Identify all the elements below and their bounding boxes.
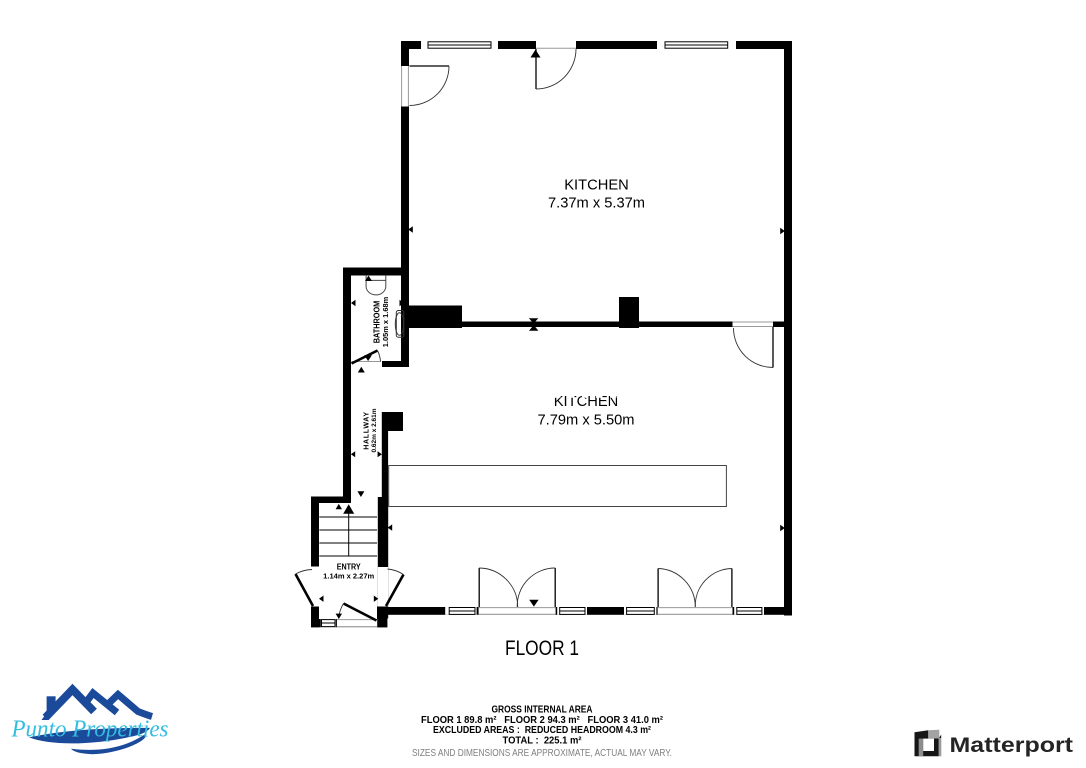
svg-text:BATHROOM: BATHROOM xyxy=(372,300,381,343)
svg-text:EXCLUDED AREAS : REDUCED HEAD: EXCLUDED AREAS : REDUCED HEADROOM 4.3 m² xyxy=(433,725,652,736)
svg-text:FLOOR 1: FLOOR 1 xyxy=(505,637,579,660)
svg-text:HALLWAY: HALLWAY xyxy=(364,411,371,449)
svg-text:1.14m x 2.27m: 1.14m x 2.27m xyxy=(323,572,374,581)
svg-text:0.62m x 2.61m: 0.62m x 2.61m xyxy=(371,408,378,452)
svg-text:ENTRY: ENTRY xyxy=(337,563,362,572)
svg-text:GROSS INTERNAL AREA: GROSS INTERNAL AREA xyxy=(492,705,593,716)
svg-text:7.37m x 5.37m: 7.37m x 5.37m xyxy=(548,195,645,212)
svg-text:Punto Properties: Punto Properties xyxy=(11,717,169,743)
svg-text:KITCHEN: KITCHEN xyxy=(564,177,629,194)
svg-text:TOTAL : 225.1 m²: TOTAL : 225.1 m² xyxy=(503,736,583,747)
svg-text:Matterport: Matterport xyxy=(950,733,1074,757)
svg-text:SIZES AND DIMENSIONS ARE APPRO: SIZES AND DIMENSIONS ARE APPROXIMATE, AC… xyxy=(412,748,672,759)
svg-text:1.05m x 1.68m: 1.05m x 1.68m xyxy=(381,296,390,347)
svg-text:7.79m x 5.50m: 7.79m x 5.50m xyxy=(538,412,635,429)
